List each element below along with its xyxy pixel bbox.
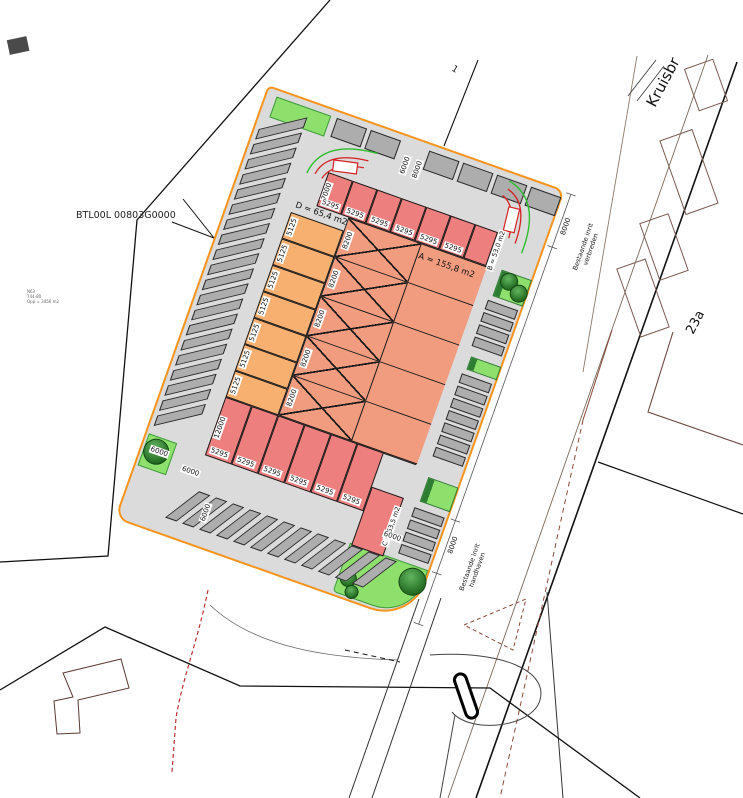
road-edge-near — [583, 56, 637, 372]
parcel-boundary-right — [648, 332, 743, 445]
dimension-label: 5295 — [341, 493, 362, 507]
dimension-label: 5295 — [235, 455, 256, 469]
dimension-label: 5125 — [266, 269, 280, 290]
building-outline-L — [54, 659, 129, 734]
dimension-label: 5125 — [275, 243, 289, 264]
boundary-dashed-red — [172, 590, 208, 772]
dashed-triangle-marking — [464, 599, 526, 650]
parcel-notch — [172, 199, 214, 238]
road-centerline-dashed — [500, 420, 583, 798]
dimension-label: 5295 — [288, 474, 309, 488]
tiny-text-block: N63744-80Opp = 3456 m2 — [27, 289, 59, 304]
traffic-island — [453, 672, 479, 719]
road-centerline-solid — [583, 330, 612, 420]
dimension-label: 5295 — [209, 446, 230, 460]
dimension-label: 5125 — [229, 375, 243, 396]
site-code-label: BTL00L 00803G0000 — [76, 210, 176, 221]
curb-line — [547, 592, 563, 798]
driveway-curve — [210, 605, 398, 660]
dimension-label: 5295 — [261, 464, 282, 478]
parcel-number-label: 23a — [683, 308, 708, 337]
dashed-boundary — [345, 650, 400, 662]
point-marker-label: 1 — [449, 64, 459, 76]
dimension-label: 5125 — [257, 296, 271, 317]
dimension-label: 5125 — [285, 216, 299, 237]
dimension-label: 5295 — [314, 483, 335, 497]
exit-road-edge — [349, 599, 419, 798]
building-block-small — [7, 36, 30, 55]
dimension-label: 5125 — [247, 322, 261, 343]
building-outline — [640, 214, 688, 281]
site-plan-page: { "colors":{ "boundary_orange":"#F7941D"… — [0, 0, 743, 798]
tiny-text-line: Opp = 3456 m2 — [27, 299, 59, 304]
dimension-label: 5125 — [238, 348, 252, 369]
parcel-boundary-top — [444, 60, 478, 146]
parcel-boundary-right2 — [598, 462, 743, 514]
street-name-label: Kruisbr — [643, 54, 684, 110]
